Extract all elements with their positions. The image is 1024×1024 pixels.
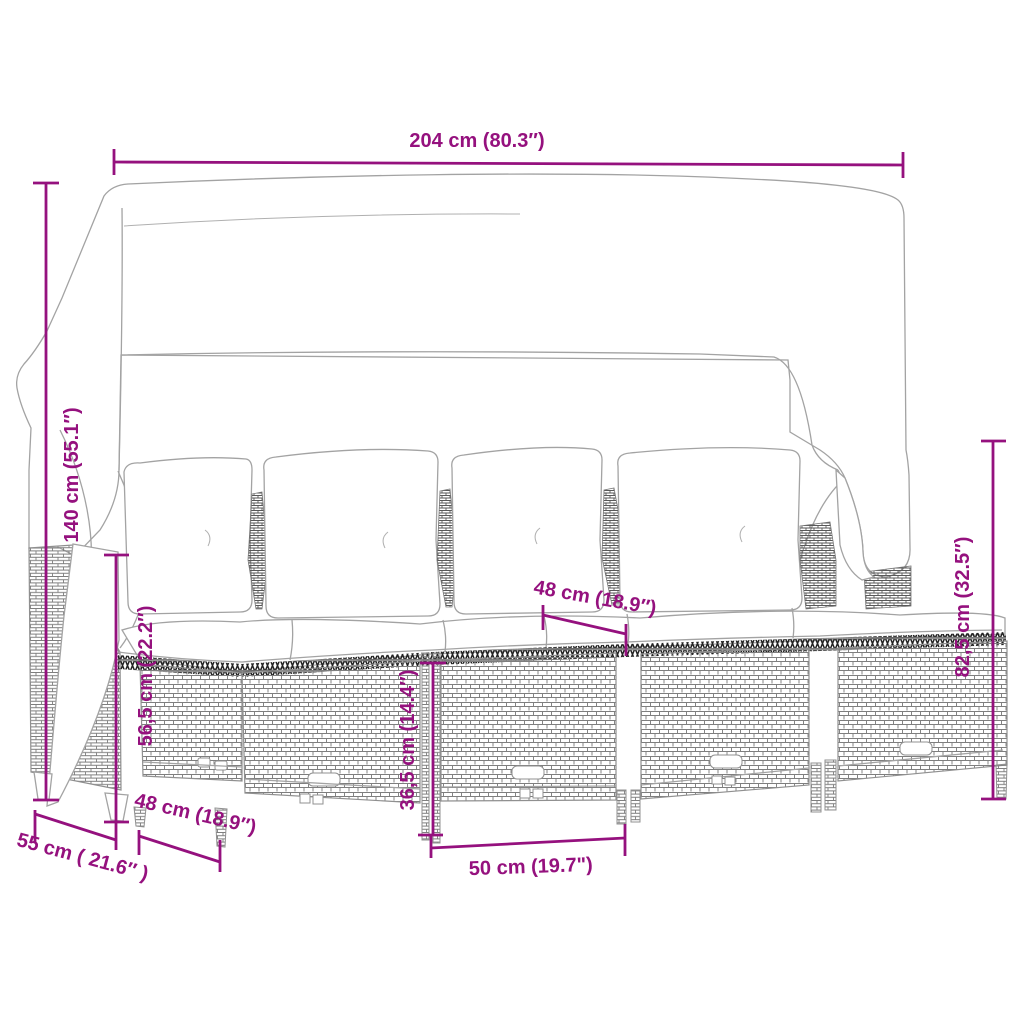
svg-text:36,5 cm (14.4″): 36,5 cm (14.4″) [397,670,419,811]
svg-text:50 cm (19.7"): 50 cm (19.7") [468,854,593,880]
svg-text:204 cm (80.3″): 204 cm (80.3″) [409,130,544,152]
svg-text:140 cm (55.1″): 140 cm (55.1″) [61,407,83,542]
svg-text:82,5 cm (32.5″): 82,5 cm (32.5″) [952,537,974,678]
svg-text:56,5 cm (22.2″): 56,5 cm (22.2″) [135,606,157,747]
